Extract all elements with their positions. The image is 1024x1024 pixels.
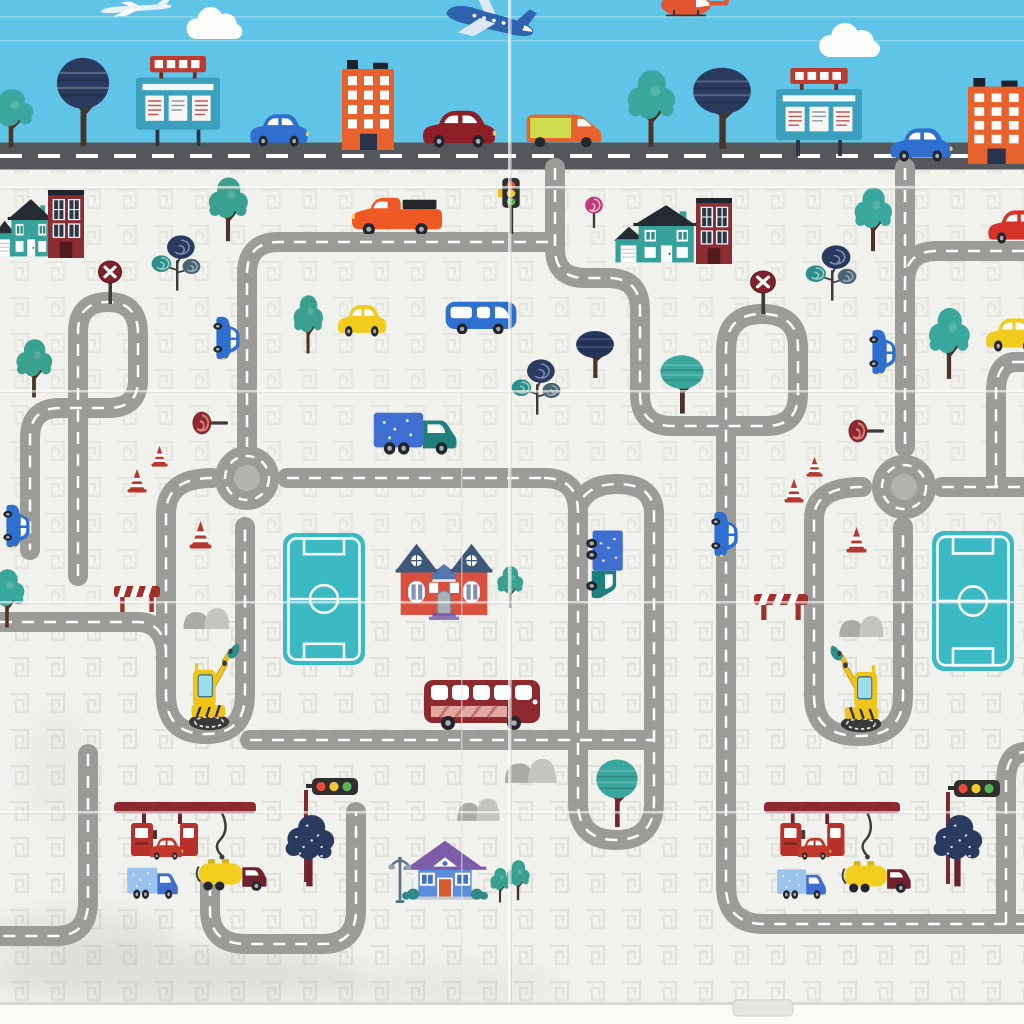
building-maroon <box>47 190 85 258</box>
roundabout-west-island <box>234 465 260 491</box>
building-orange <box>968 78 1024 164</box>
bus-red <box>424 680 540 730</box>
sports-field <box>283 533 365 665</box>
mat-fold-tab <box>733 1000 793 1016</box>
play-mat-scene <box>0 0 1024 1024</box>
roundabout-east-island <box>891 474 917 500</box>
building-maroon <box>695 198 733 264</box>
building-orange <box>342 60 394 150</box>
mat-bottom-edge <box>0 1000 1024 1024</box>
play-mat-photo <box>0 0 1024 1024</box>
